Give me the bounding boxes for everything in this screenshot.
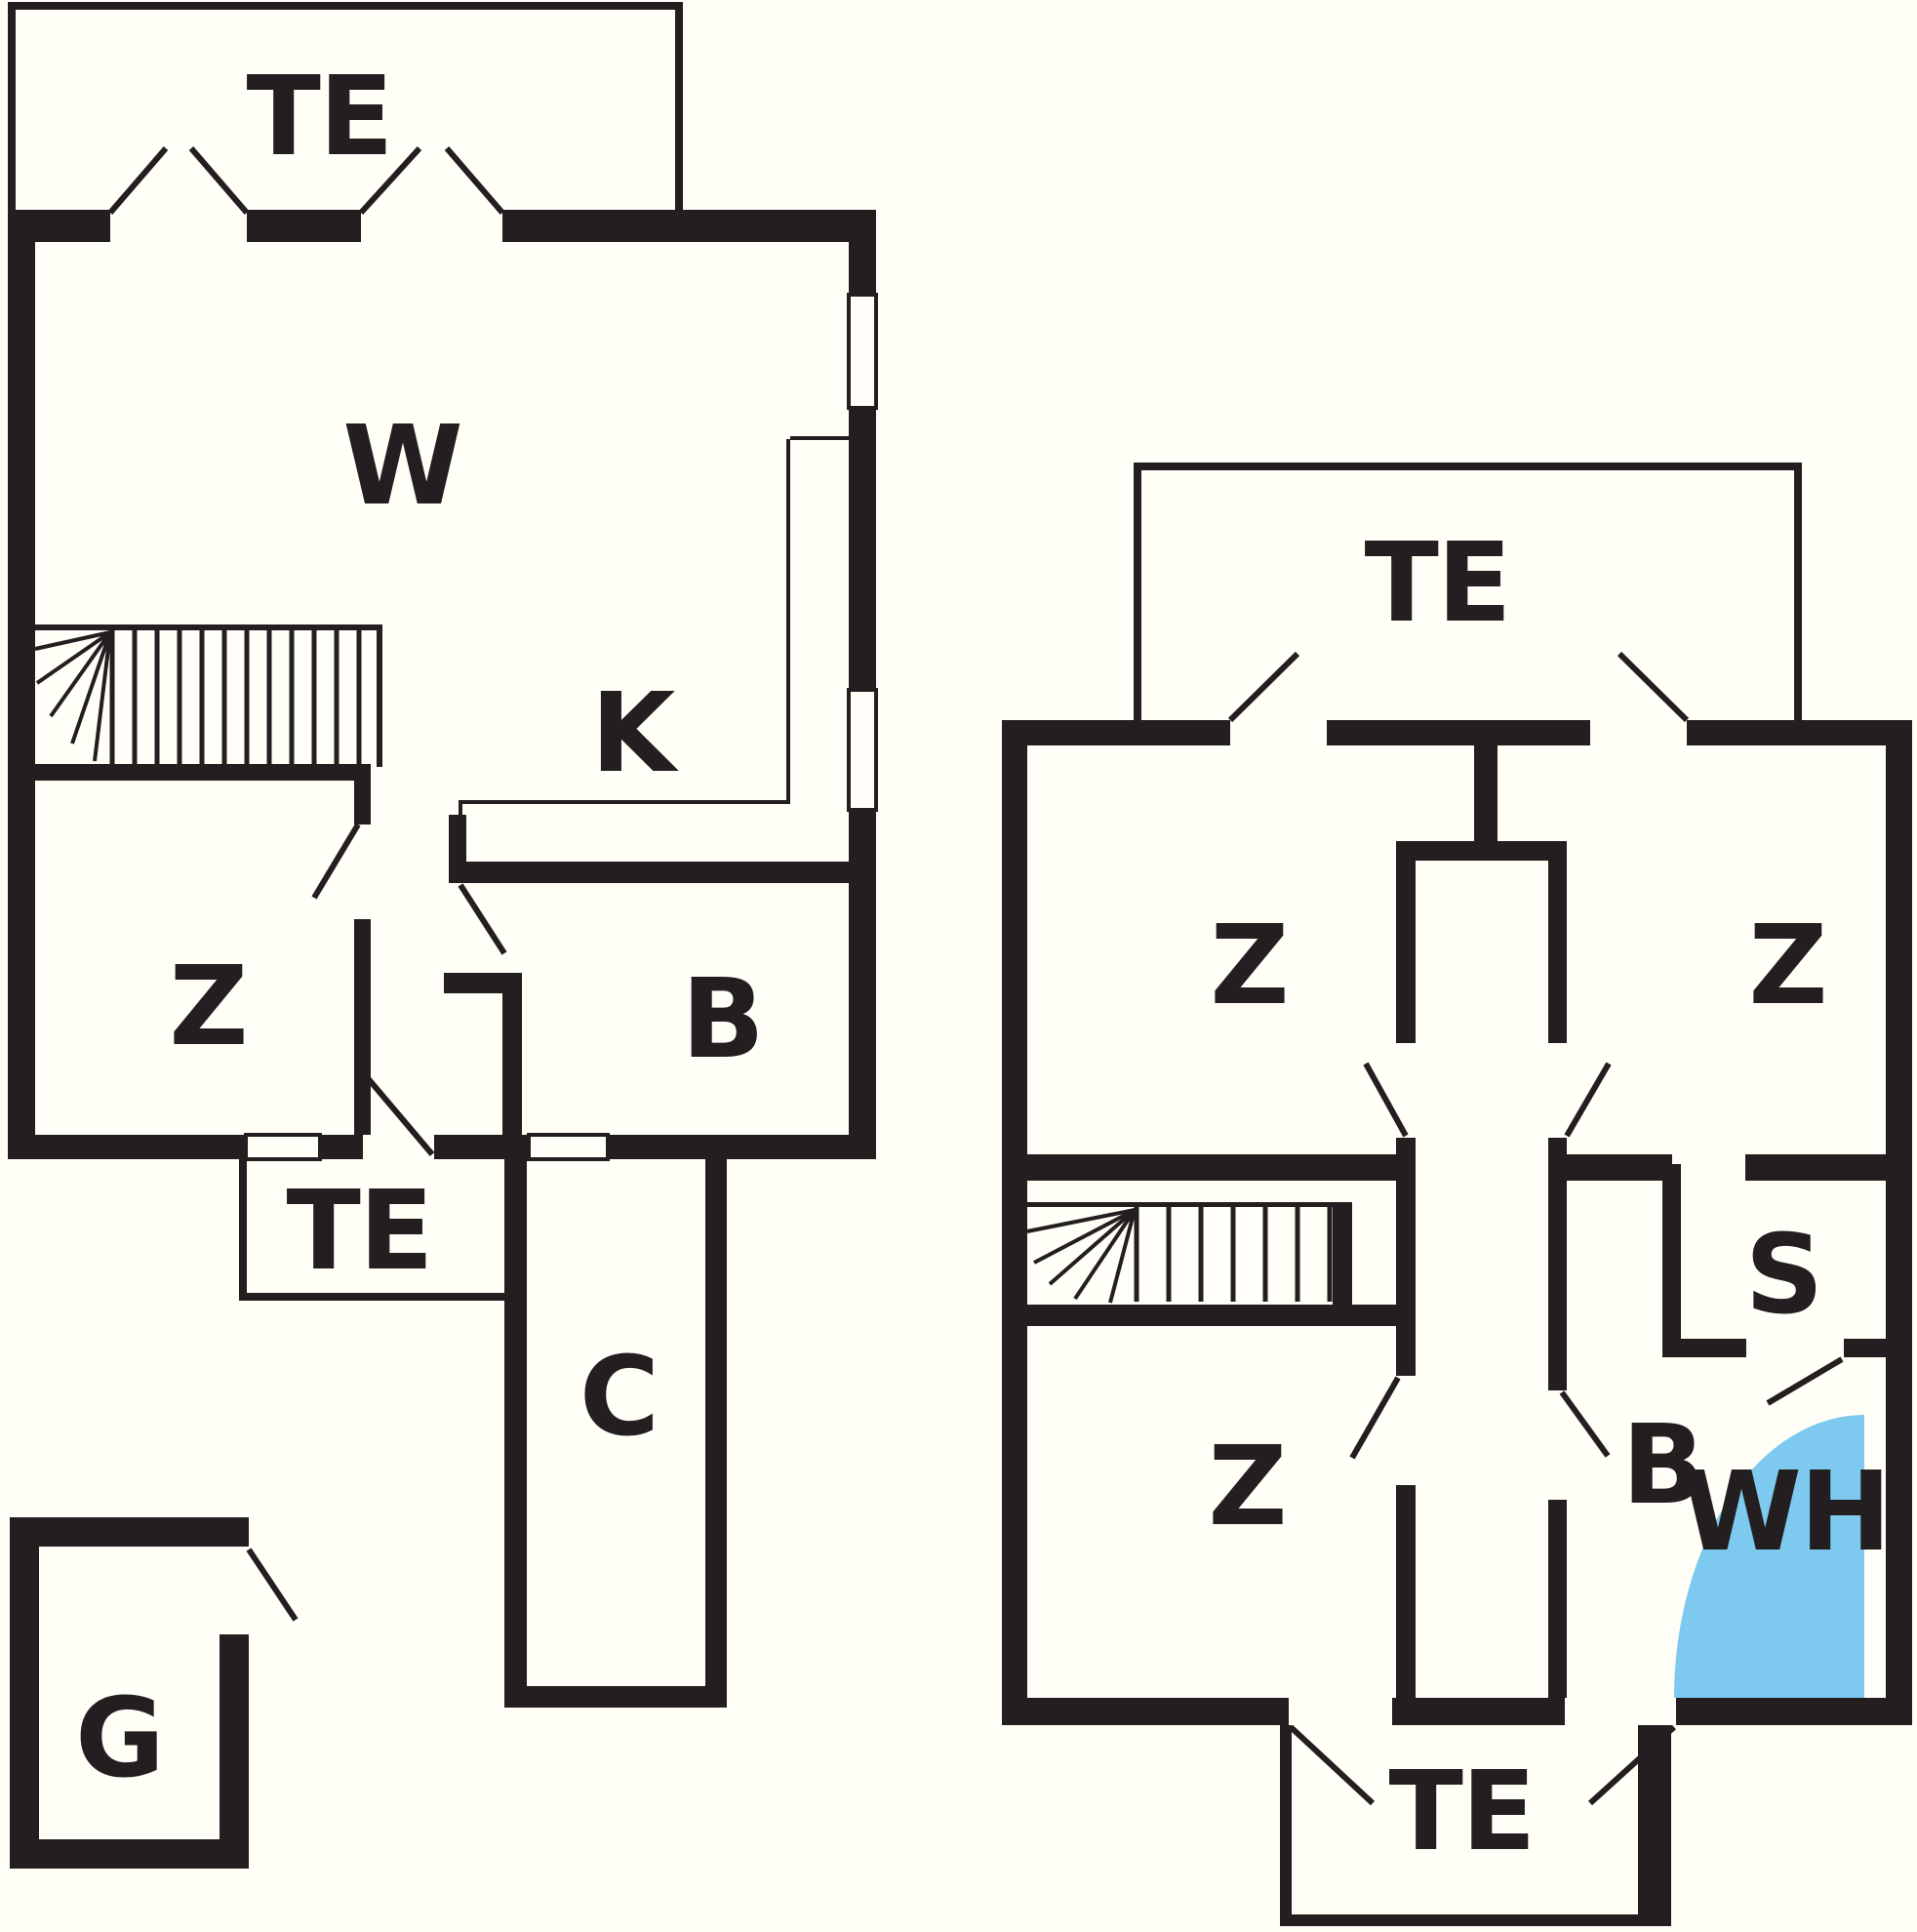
door-swing bbox=[110, 148, 166, 213]
floor-plan-canvas: TE W K Z B TE C G bbox=[0, 0, 1917, 1932]
door-swing bbox=[1619, 654, 1687, 720]
door-swing bbox=[1590, 1727, 1674, 1803]
door-swing bbox=[1230, 654, 1298, 720]
stair-winder bbox=[1027, 1210, 1135, 1231]
door-swing bbox=[1768, 1359, 1842, 1403]
door-swing bbox=[1352, 1378, 1398, 1458]
plan-linework bbox=[0, 0, 1917, 1932]
door-swing bbox=[1291, 1727, 1373, 1803]
door-swing bbox=[447, 148, 502, 213]
door-swing bbox=[1562, 1392, 1608, 1456]
door-swing bbox=[314, 825, 358, 898]
door-swing bbox=[368, 1078, 432, 1154]
door-swing bbox=[361, 148, 419, 213]
door-swing bbox=[249, 1550, 296, 1620]
stair-winder bbox=[1110, 1210, 1135, 1303]
door-swing bbox=[1567, 1064, 1609, 1136]
door-swing bbox=[1366, 1064, 1406, 1136]
door-swing bbox=[191, 148, 247, 213]
door-swing bbox=[460, 885, 504, 953]
